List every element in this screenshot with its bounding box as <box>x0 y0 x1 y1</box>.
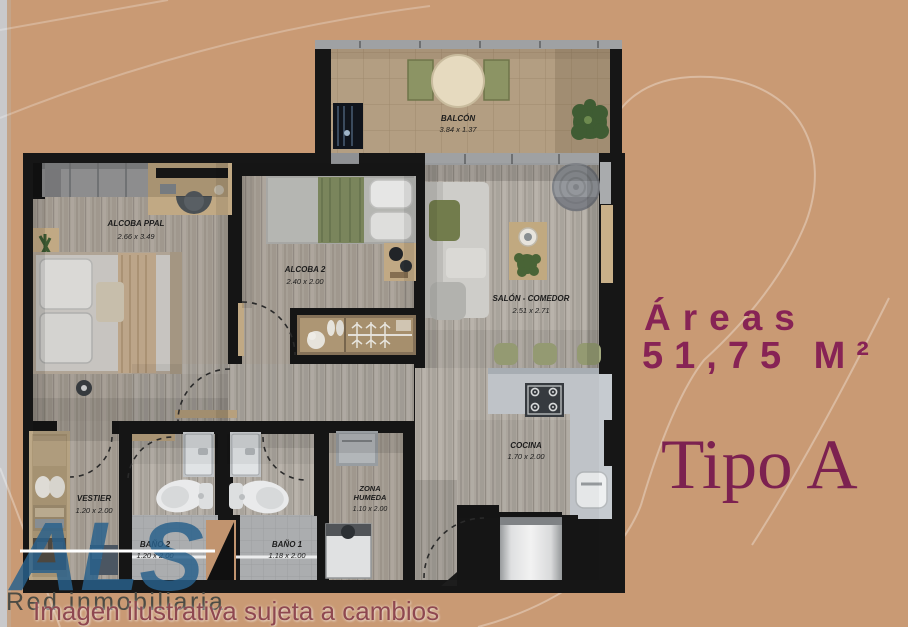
svg-text:BALCÓN: BALCÓN <box>441 114 475 123</box>
svg-text:Áreas: Áreas <box>644 297 807 338</box>
svg-text:2.51 x 2.71: 2.51 x 2.71 <box>511 306 549 315</box>
svg-text:1.70 x 2.00: 1.70 x 2.00 <box>507 452 545 461</box>
svg-text:2.66 x 3.49: 2.66 x 3.49 <box>116 232 155 241</box>
svg-text:Tipo A: Tipo A <box>661 426 858 504</box>
svg-text:COCINA: COCINA <box>510 441 542 450</box>
svg-text:BAÑO 1: BAÑO 1 <box>272 540 303 549</box>
svg-text:2.40 x 2.00: 2.40 x 2.00 <box>285 277 324 286</box>
svg-text:3.84 x 1.37: 3.84 x 1.37 <box>439 125 477 134</box>
svg-text:1.10 x 2.00: 1.10 x 2.00 <box>353 506 388 513</box>
svg-text:SALÓN - COMEDOR: SALÓN - COMEDOR <box>493 294 570 303</box>
svg-text:1.18 x 2.00: 1.18 x 2.00 <box>268 551 306 560</box>
svg-text:HUMEDA: HUMEDA <box>354 493 387 502</box>
svg-text:ALCOBA PPAL: ALCOBA PPAL <box>107 219 165 228</box>
svg-text:ZONA: ZONA <box>358 484 380 493</box>
svg-text:51,75 M²: 51,75 M² <box>642 335 880 377</box>
svg-text:ALCOBA 2: ALCOBA 2 <box>284 265 326 274</box>
